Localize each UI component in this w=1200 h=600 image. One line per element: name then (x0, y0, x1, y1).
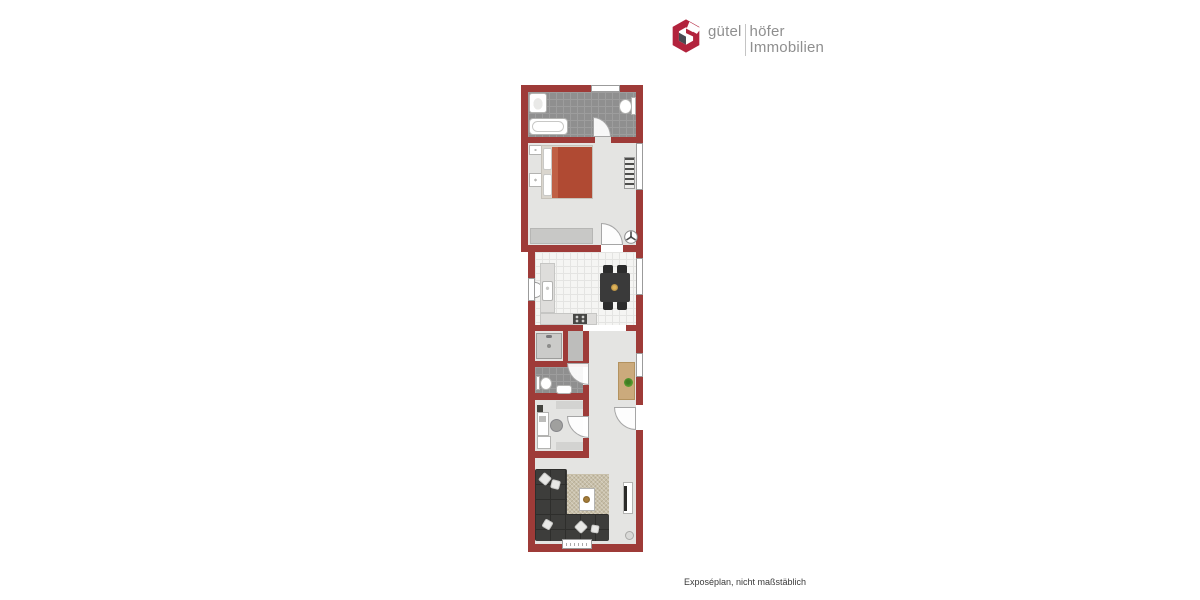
wardrobe (530, 228, 593, 244)
sofa-pillow (590, 524, 599, 533)
sink (529, 93, 547, 113)
wall-top (521, 85, 643, 92)
dining-chair (617, 301, 627, 310)
brand-text: gütel höfer Immobilien (708, 24, 824, 56)
wall-hall-vertical-b (583, 385, 589, 416)
brand-name-right-top: höfer (750, 23, 785, 40)
wall-hall-vertical-a (583, 331, 589, 363)
bed-pillow-top (543, 148, 552, 170)
window-bedroom (636, 143, 643, 190)
table-candle (611, 284, 618, 291)
footer-disclaimer: Exposéplan, nicht maßstäblich (660, 577, 830, 587)
bathtub-inner (532, 121, 564, 132)
kitchen-counter-bottom (540, 313, 597, 325)
tv (624, 486, 627, 511)
wall-left-upper (521, 85, 528, 252)
floor-lamp (625, 531, 634, 540)
coffee-table-bowl (583, 496, 590, 503)
window-kitchen-left (528, 278, 535, 301)
wall-office-living (528, 451, 589, 458)
kitchen-sink (542, 281, 553, 301)
opening-entrance (636, 405, 643, 430)
shower-head-icon (546, 335, 552, 338)
office-mat-bottom (556, 442, 583, 450)
ceiling-fan-icon (624, 230, 638, 244)
window-hallway (636, 353, 643, 377)
wc-toilet-bowl (540, 377, 552, 390)
window-kitchen-right (636, 258, 643, 295)
radiator (624, 157, 635, 189)
wall-kitchen-bottom-a (535, 325, 583, 331)
wall-bedroom-kitchen-b (623, 245, 636, 252)
window-radiator-label (562, 539, 592, 549)
stove (573, 314, 587, 324)
window-bathroom-top (591, 85, 620, 92)
floor-closet (568, 331, 583, 361)
bed-duvet (552, 147, 592, 198)
brand-name-left: gütel (708, 24, 742, 56)
office-mat-top (556, 401, 583, 409)
toilet-bowl (619, 99, 632, 114)
shower-drain (547, 344, 551, 348)
wall-kitchen-bottom-b (626, 325, 636, 331)
wall-shower-closet (563, 331, 568, 361)
brand-name-right: höfer Immobilien (745, 24, 825, 56)
wall-wc-office (528, 393, 589, 400)
brand-mark-icon (671, 16, 701, 56)
wc-sink (556, 385, 572, 394)
wall-bedroom-kitchen-a (528, 245, 601, 252)
brand-name-line2: Immobilien (750, 39, 825, 56)
dining-chair (603, 301, 613, 310)
floorplan (521, 85, 643, 552)
office-chair (550, 419, 563, 432)
desk-items (539, 416, 546, 422)
wall-hall-vertical-c (583, 438, 589, 451)
wall-bath-bedroom-a (528, 137, 595, 143)
office-side-table (537, 436, 551, 449)
wall-bath-bedroom-b (611, 137, 636, 143)
page: gütel höfer Immobilien (0, 0, 1200, 600)
bed-pillow-bottom (543, 174, 552, 196)
brand-logo: gütel höfer Immobilien (671, 16, 824, 56)
plant (624, 378, 633, 387)
